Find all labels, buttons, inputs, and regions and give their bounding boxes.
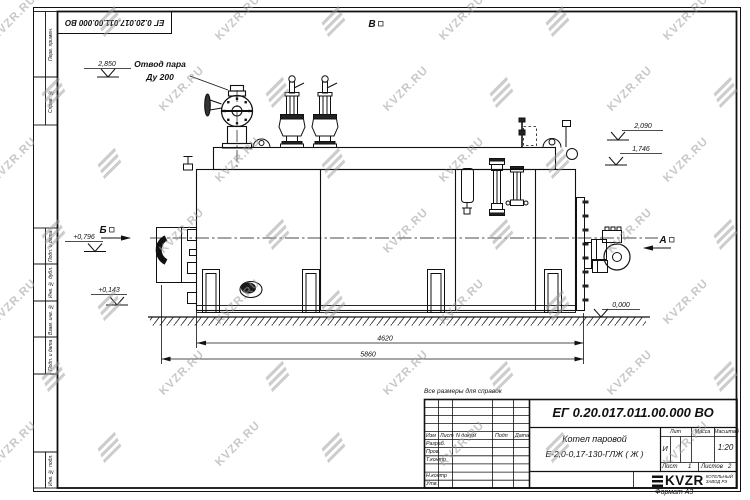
logo-tagline: КОТЕЛЬНЫЙ ЗАВОД РЭ bbox=[706, 475, 733, 484]
ground-hatching bbox=[148, 317, 650, 326]
product-name-line1: Котел паровой bbox=[529, 434, 660, 444]
row-nkontr: Н.контр bbox=[426, 473, 447, 479]
boiler-supports bbox=[203, 270, 562, 313]
safety-valve-2 bbox=[312, 76, 338, 148]
col-podp: Подп bbox=[495, 433, 508, 439]
manhole bbox=[240, 282, 262, 298]
elev-ground-label: 0,000 bbox=[612, 302, 630, 309]
scale-value: 1:20 bbox=[714, 443, 737, 452]
elev-right-lower-label: 1,746 bbox=[632, 146, 650, 153]
logo-text: KVZR bbox=[665, 473, 704, 488]
masshtab-header: Масштаб bbox=[714, 429, 737, 435]
logo-tagline-line2: ЗАВОД РЭ bbox=[706, 480, 733, 485]
margin-label-podp-data-2: Подп. и дата bbox=[45, 337, 57, 374]
rear-fan-unit bbox=[585, 227, 631, 273]
drawing-sheet: 4620 5860 2,850 Отвод пара Ду 200 2,090 … bbox=[0, 0, 750, 500]
sheets-label: Листов bbox=[701, 464, 723, 470]
drum-fittings bbox=[253, 118, 578, 160]
col-izm: Изм bbox=[426, 433, 436, 439]
lit-header: Лит bbox=[660, 429, 691, 435]
view-b-label: Б bbox=[99, 225, 106, 236]
manufacturer-logo: KVZR КОТЕЛЬНЫЙ ЗАВОД РЭ bbox=[652, 473, 733, 488]
water-level-gauges bbox=[462, 159, 529, 216]
dim-body-label: 4620 bbox=[377, 336, 393, 343]
sheets-value: 2 bbox=[728, 464, 731, 470]
top-doc-number-stamp: ЕГ 0.20.017.011.00.000 ВО bbox=[57, 11, 172, 34]
sheet-label: Лист bbox=[662, 464, 677, 470]
margin-label-inv-dubl: Инв. № дубл. bbox=[45, 264, 57, 301]
boiler-body bbox=[150, 148, 658, 313]
drawing-canvas: 4620 5860 2,850 Отвод пара Ду 200 2,090 … bbox=[0, 0, 750, 500]
massa-header: Масса bbox=[691, 429, 714, 435]
elev-right-upper-label: 2,090 bbox=[633, 123, 652, 130]
col-ndokum: N докум bbox=[456, 433, 476, 439]
elev-left-lower-label: +0,143 bbox=[98, 287, 120, 294]
elev-top-label: 2,850 bbox=[97, 61, 116, 68]
col-data: Дата bbox=[515, 433, 529, 439]
margin-label-podp-data-1: Подп. и дата bbox=[45, 228, 57, 264]
margin-label-vzam-inv: Взам. инв. № bbox=[45, 301, 57, 337]
row-prov: Пров. bbox=[426, 449, 440, 455]
logo-bars-icon bbox=[652, 474, 663, 487]
view-a-label: А bbox=[658, 235, 666, 246]
rear-flange-wall bbox=[577, 198, 589, 311]
dim-overall-label: 5860 bbox=[360, 352, 376, 359]
elev-left-upper-label: +0,796 bbox=[73, 234, 95, 241]
safety-valve-1 bbox=[279, 76, 305, 148]
lit-value: И bbox=[660, 444, 670, 453]
margin-label-inv-podl: Инв. № подл. bbox=[45, 452, 57, 488]
col-list: Лист bbox=[440, 433, 454, 439]
sheet-value: 1 bbox=[688, 464, 691, 470]
steam-outlet-note-line1: Отвод пара bbox=[134, 59, 186, 69]
row-utv: Утв. bbox=[426, 481, 438, 487]
product-name-line2: Е-2,0-0,17-130-ГЛЖ ( Ж ) bbox=[529, 449, 660, 459]
reference-note: Все размеры для справок bbox=[424, 388, 502, 395]
steam-outlet-note-line2: Ду 200 bbox=[145, 72, 174, 82]
format-label: Формат А3 bbox=[655, 489, 693, 496]
view-v-label: В bbox=[368, 19, 375, 30]
row-tkontr: Т.контр bbox=[426, 457, 446, 463]
margin-label-sprav-n: Справ. № bbox=[45, 77, 57, 125]
margin-label-perv-primen: Перв. примен. bbox=[45, 11, 57, 77]
elevation-marks bbox=[65, 69, 663, 310]
steam-outlet-valve bbox=[205, 86, 253, 169]
top-doc-number: ЕГ 0.20.017.011.00.000 ВО bbox=[65, 18, 164, 27]
title-doc-number: ЕГ 0.20.017.011.00.000 ВО bbox=[529, 405, 737, 420]
row-razrab: Разраб. bbox=[426, 441, 445, 447]
burner-unit bbox=[157, 157, 197, 304]
